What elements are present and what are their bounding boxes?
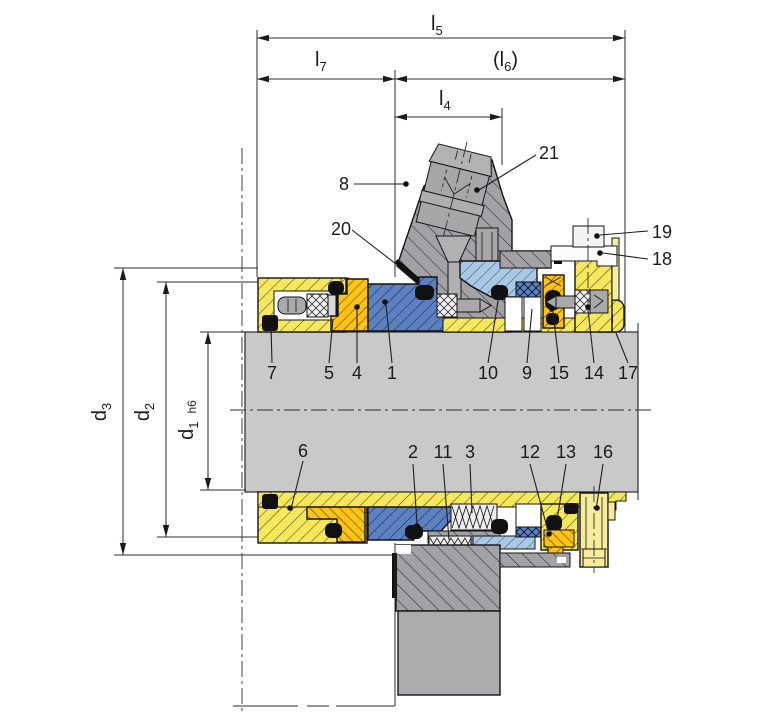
- screw-seat: [328, 295, 336, 316]
- upper-seal-assembly: [258, 134, 624, 332]
- part-label-8: 8: [339, 174, 349, 194]
- part-label-11: 11: [434, 442, 453, 462]
- part-label-5: 5: [324, 363, 334, 383]
- clamp-bolt-shank: [556, 296, 575, 308]
- bellows-section-bottom: [516, 527, 543, 537]
- technical-drawing-page: l5 l7 (l6) l4 d3 d2 d1h6: [0, 0, 768, 716]
- part-label-12: 12: [520, 442, 540, 462]
- dim-label-l4: l4: [439, 88, 451, 113]
- shaft-body: [245, 332, 638, 492]
- o-ring: [564, 503, 578, 514]
- dim-label-l5: l5: [431, 13, 443, 38]
- o-ring: [546, 313, 559, 325]
- spring-3: [451, 504, 497, 530]
- part-label-19: 19: [652, 222, 672, 242]
- clamp-bolt-head: [590, 290, 608, 313]
- drive-bolt: [457, 299, 480, 312]
- set-screw-5: [278, 297, 306, 314]
- drive-pin-section: [437, 294, 457, 317]
- dim-label-d3: d3: [89, 403, 114, 421]
- spring-retainer-9: [505, 297, 522, 331]
- part-label-20: 20: [331, 219, 351, 239]
- part-label-1: 1: [387, 363, 397, 383]
- part-label-4: 4: [352, 363, 362, 383]
- spring-retainer-bottom: [516, 504, 543, 527]
- collar-hub: [398, 611, 500, 695]
- part-label-13: 13: [556, 442, 576, 462]
- part-label-18: 18: [652, 249, 672, 269]
- seal-ring-1: [368, 277, 444, 331]
- o-ring: [325, 523, 342, 538]
- bellows-section-11: [516, 282, 541, 297]
- shaft: [245, 323, 638, 500]
- leader-20: [352, 230, 396, 264]
- part-label-2: 2: [408, 442, 418, 462]
- gland-plate: [500, 251, 551, 268]
- dim-label-l6: (l6): [493, 49, 518, 74]
- dim-label-d1: d1h6: [176, 400, 201, 440]
- o-ring: [491, 519, 508, 534]
- part-label-21: 21: [539, 143, 559, 163]
- o-ring-6: [262, 494, 278, 509]
- part-label-10: 10: [478, 363, 498, 383]
- o-ring: [328, 281, 344, 295]
- dim-label-l7: l7: [315, 49, 327, 74]
- drive-collar: [392, 545, 570, 695]
- leader-8: [354, 181, 409, 187]
- part-label-6: 6: [298, 441, 308, 461]
- part-label-3: 3: [465, 442, 475, 462]
- part-label-14: 14: [584, 363, 604, 383]
- spring-retainer-9: [524, 297, 541, 331]
- part-label-16: 16: [593, 442, 613, 462]
- part-label-17: 17: [618, 363, 638, 383]
- part-label-7: 7: [267, 363, 277, 383]
- dim-label-d2: d2: [132, 403, 157, 421]
- lower-seal-assembly: [258, 486, 626, 695]
- part-label-9: 9: [522, 363, 532, 383]
- o-ring: [405, 525, 423, 539]
- o-ring-13: [546, 515, 562, 531]
- o-ring: [415, 285, 434, 300]
- screw-section: [307, 294, 328, 317]
- seal-cross-section-drawing: l5 l7 (l6) l4 d3 d2 d1h6: [0, 0, 768, 716]
- part-label-15: 15: [549, 363, 569, 383]
